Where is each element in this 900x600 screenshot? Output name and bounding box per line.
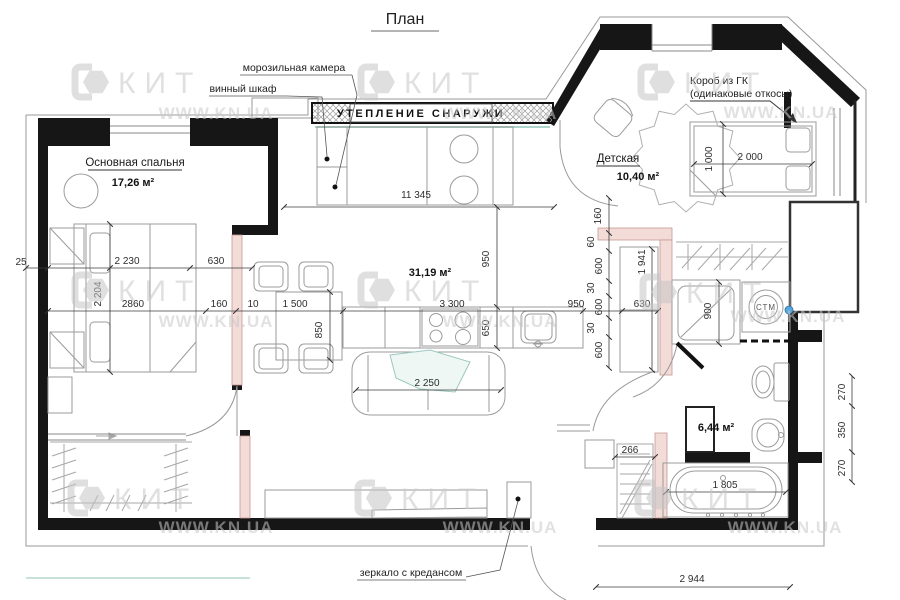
dim-kid-bed-len: 2 000 [737, 152, 762, 163]
freezer-point [333, 185, 338, 190]
watermark-site [731, 307, 846, 326]
dim-top-total: 11 345 [401, 190, 431, 201]
watermark-site [724, 103, 839, 122]
console-with-mirror [265, 482, 531, 518]
watermark [361, 275, 488, 308]
bedroom-cabinet [48, 377, 72, 413]
dim-dining-len: 1 500 [282, 299, 307, 310]
dim-kid-bed-w: 1 000 [704, 146, 715, 171]
kids-area: 10,40 м² [617, 171, 660, 183]
watermark [75, 67, 202, 100]
kids-armchair [592, 93, 638, 139]
floor-plan-drawing: КИТ WWW.KN.UA [0, 0, 900, 600]
dim-chain600c: 600 [594, 341, 605, 358]
mirror-point [516, 497, 521, 502]
floor-plan-page: КИТ WWW.KN.UA [0, 0, 900, 600]
dim-hall-len: 1 941 [637, 249, 648, 274]
dim-chain60: 60 [586, 236, 597, 248]
dim-bottom-total: 2 944 [679, 574, 704, 585]
dim-bed-side: 630 [208, 256, 225, 267]
hall-closet-hatching [676, 242, 788, 270]
kids-name: Детская [597, 153, 640, 165]
mirror-label: зеркало с кредансом [360, 567, 462, 579]
dim-seg10: 10 [247, 299, 259, 310]
dim-right270a: 270 [837, 383, 848, 400]
watermark [358, 483, 485, 516]
dim-dining-dep: 850 [314, 321, 325, 338]
freezer-label: морозильная камера [243, 62, 346, 74]
dim-chain160: 160 [593, 207, 604, 224]
room-kids-label: Детская 10,40 м² [596, 153, 660, 183]
wine-cabinet-point [325, 157, 330, 162]
room-bedroom-label: Основная спальня 17,26 м² [85, 157, 184, 189]
dim-right350: 350 [837, 421, 848, 438]
dim-sofa-len: 2 250 [414, 378, 439, 389]
dim-chain30a: 30 [586, 282, 597, 294]
duct-shaft [790, 202, 858, 312]
door-leaf [677, 343, 703, 368]
bathroom-door-arc [593, 371, 655, 431]
entrance-door-arc [531, 546, 566, 600]
bedroom-name: Основная спальня [85, 157, 184, 169]
toilet [752, 363, 789, 401]
watermark-site [159, 518, 274, 537]
dim-chain600a: 600 [594, 257, 605, 274]
watermark-site [443, 104, 558, 123]
watermark-site [728, 518, 843, 537]
dim-left-gap: 25 [15, 257, 27, 268]
pouf [64, 174, 98, 208]
watermark-site [159, 104, 274, 123]
dim-chain600b: 600 [594, 298, 605, 315]
dim-pass-h: 950 [568, 299, 585, 310]
wine-cabinet-label: винный шкаф [209, 83, 276, 95]
dim-chain30b: 30 [586, 322, 597, 334]
bedroom-door-arc [186, 386, 237, 436]
dim-pass-v: 950 [481, 250, 492, 267]
bath-cabinet [585, 440, 614, 468]
watermark-site [443, 518, 558, 537]
watermark-site [443, 312, 558, 331]
bathroom-sink [752, 419, 784, 451]
watermark [361, 67, 488, 100]
dim-seg160: 160 [211, 299, 228, 310]
dim-bath-shelf: 266 [622, 445, 639, 456]
dim-bed-width: 2 230 [114, 256, 139, 267]
watermark-site [159, 312, 274, 331]
bathroom-area: 6,44 м² [698, 422, 735, 434]
dim-right270b: 270 [837, 459, 848, 476]
bedroom-area: 17,26 м² [112, 177, 155, 189]
page-title: План [386, 11, 425, 28]
watermark [641, 67, 768, 100]
